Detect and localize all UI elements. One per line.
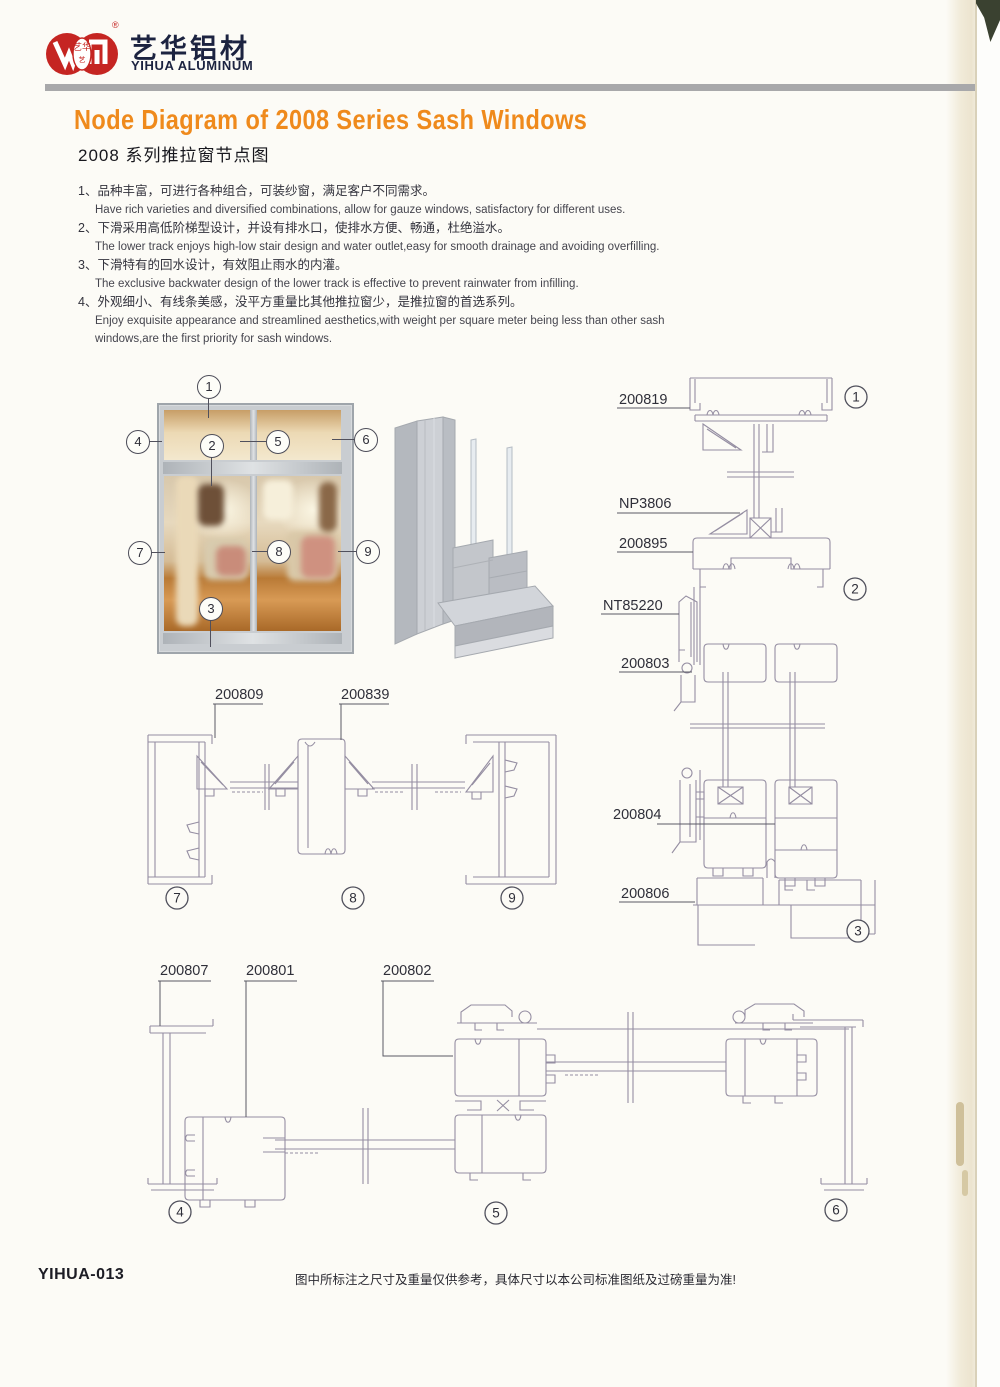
- bottom-section-leaders: [158, 981, 453, 1117]
- part-label-200803: 200803: [621, 656, 669, 672]
- feature-3-en: The exclusive backwater design of the lo…: [78, 275, 678, 294]
- leader-line: [240, 441, 266, 442]
- page-subtitle: 2008 系列推拉窗节点图: [78, 141, 270, 166]
- callout-5: 5: [492, 1206, 500, 1221]
- callout-8: 8: [267, 540, 291, 564]
- callout-4: 4: [176, 1205, 184, 1220]
- scan-edge-white: [977, 0, 1000, 1387]
- callout-2: 2: [200, 434, 224, 458]
- meeting-stile: [250, 476, 257, 631]
- leader-line: [148, 441, 162, 442]
- callout-9: 9: [356, 540, 380, 564]
- leader-line: [338, 551, 356, 552]
- feature-list: 1、品种丰富，可进行各种组合，可装纱窗，满足客户不同需求。 Have rich …: [78, 182, 678, 349]
- registered-mark: ®: [112, 20, 119, 30]
- vertical-section-leaders: [601, 408, 775, 902]
- callout-7: 7: [128, 541, 152, 565]
- leader-line: [150, 552, 165, 553]
- feature-2-en: The lower track enjoys high-low stair de…: [78, 238, 678, 257]
- callout-6: 6: [354, 428, 378, 452]
- vertical-section-linework: [672, 378, 875, 945]
- vertical-section-diagram: 200819 NP3806 200895 NT85220 200803 2008…: [595, 372, 895, 962]
- leader-line: [332, 439, 354, 440]
- section-callouts: 1 2 3: [844, 386, 869, 942]
- part-label-200819: 200819: [619, 392, 667, 408]
- logo-seal-text: 艺华: [73, 41, 91, 52]
- part-label-NT85220: NT85220: [603, 598, 663, 614]
- part-label-NP3806: NP3806: [619, 496, 671, 512]
- brand-name-en: YIHUA ALUMINUM: [131, 58, 253, 73]
- feature-1-en: Have rich varieties and diversified comb…: [78, 201, 678, 220]
- feature-4-cn: 4、外观细小、有线条美感，没平方重量比其他推拉窗少，是推拉窗的首选系列。: [78, 293, 678, 312]
- callout-2: 2: [851, 582, 859, 597]
- profile-3d-render: [383, 408, 578, 663]
- feature-4-en: Enjoy exquisite appearance and streamlin…: [78, 312, 678, 349]
- callout-9: 9: [508, 891, 516, 906]
- callout-8: 8: [349, 891, 357, 906]
- leader-line: [210, 619, 211, 647]
- transom-bar: [163, 462, 342, 474]
- part-label-200804: 200804: [613, 807, 661, 823]
- page-code: YIHUA-013: [38, 1266, 124, 1284]
- leader-line: [211, 456, 212, 486]
- callout-3: 3: [199, 597, 223, 621]
- callout-5: 5: [266, 430, 290, 454]
- part-label-200809: 200809: [215, 687, 263, 703]
- callout-6: 6: [832, 1203, 840, 1218]
- leader-line: [252, 551, 267, 552]
- part-label-200807: 200807: [160, 963, 208, 979]
- callout-3: 3: [854, 924, 862, 939]
- logo-circles-icon: 艺华 艺: [46, 33, 118, 75]
- middle-section-linework: [148, 735, 556, 884]
- callout-7: 7: [173, 891, 181, 906]
- svg-text:艺: 艺: [79, 56, 86, 64]
- middle-section-leaders: [213, 704, 389, 740]
- callout-1: 1: [197, 375, 221, 399]
- middle-section-diagram: 200809 200839 7 8 9: [135, 682, 575, 922]
- feature-2-cn: 2、下滑采用高低阶梯型设计，并设有排水口，使排水方便、畅通，杜绝溢水。: [78, 219, 678, 238]
- part-label-200802: 200802: [383, 963, 431, 979]
- leader-line: [208, 397, 209, 418]
- bottom-rail: [163, 633, 342, 644]
- section-callouts: 7 8 9: [166, 887, 523, 909]
- section-callouts: 4 5 6: [169, 1199, 847, 1224]
- brand-logo-icon: 艺华 艺: [45, 24, 125, 80]
- part-label-200839: 200839: [341, 687, 389, 703]
- part-label-200895: 200895: [619, 536, 667, 552]
- page-title: Node Diagram of 2008 Series Sash Windows: [74, 104, 587, 136]
- bottom-section-diagram: 200807 200801 200802 4 5 6: [145, 960, 875, 1230]
- bottom-section-linework: [148, 1004, 867, 1207]
- scan-edge-streak: [956, 1102, 964, 1166]
- part-label-200806: 200806: [621, 886, 669, 902]
- feature-3-cn: 3、下滑特有的回水设计，有效阻止雨水的内灌。: [78, 256, 678, 275]
- transom-mullion: [250, 410, 257, 460]
- header-divider: [45, 84, 975, 91]
- catalog-page: 艺华 艺 ® 艺华铝材 YIHUA ALUMINUM Node Diagram …: [0, 0, 1000, 1387]
- feature-1-cn: 1、品种丰富，可进行各种组合，可装纱窗，满足客户不同需求。: [78, 182, 678, 201]
- scan-edge-streak: [962, 1170, 968, 1196]
- part-label-200801: 200801: [246, 963, 294, 979]
- callout-4: 4: [126, 430, 150, 454]
- callout-1: 1: [852, 390, 860, 405]
- footer-note: 图中所标注之尺寸及重量仅供参考，具体尺寸以本公司标准图纸及过磅重量为准!: [295, 1269, 736, 1288]
